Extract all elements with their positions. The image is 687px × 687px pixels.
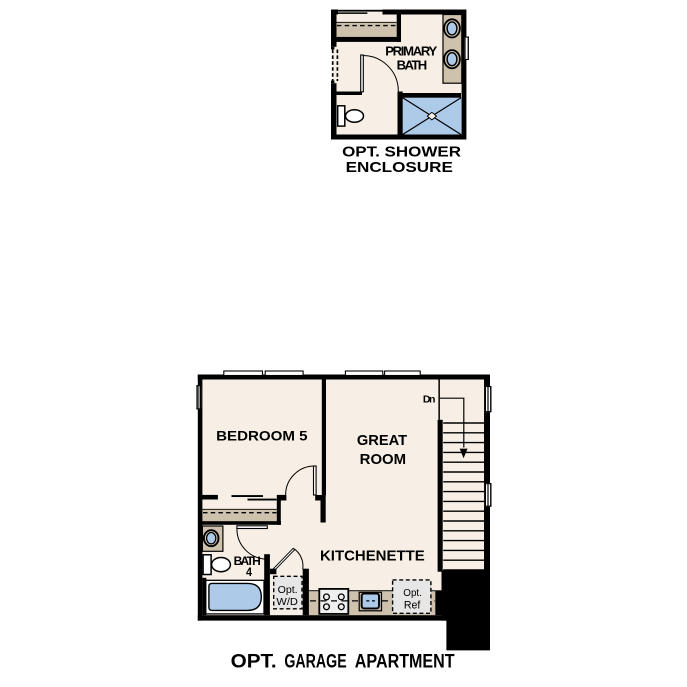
- svg-text:4: 4: [246, 565, 252, 579]
- svg-text:Opt.: Opt.: [278, 584, 298, 596]
- svg-text:GREAT: GREAT: [357, 433, 407, 449]
- svg-text:Ref: Ref: [404, 600, 421, 612]
- svg-text:OPT.: OPT.: [231, 651, 277, 673]
- svg-text:GARAGE: GARAGE: [284, 651, 346, 673]
- svg-text:BATH: BATH: [397, 57, 427, 72]
- svg-text:KITCHENETTE: KITCHENETTE: [320, 549, 425, 565]
- svg-text:Opt.: Opt.: [403, 587, 422, 599]
- svg-text:ROOM: ROOM: [360, 452, 406, 468]
- svg-text:APARTMENT: APARTMENT: [355, 651, 455, 673]
- svg-text:BEDROOM 5: BEDROOM 5: [216, 428, 308, 444]
- svg-text:Dn: Dn: [423, 393, 435, 405]
- svg-text:W/D: W/D: [276, 596, 298, 608]
- svg-text:ENCLOSURE: ENCLOSURE: [346, 159, 453, 176]
